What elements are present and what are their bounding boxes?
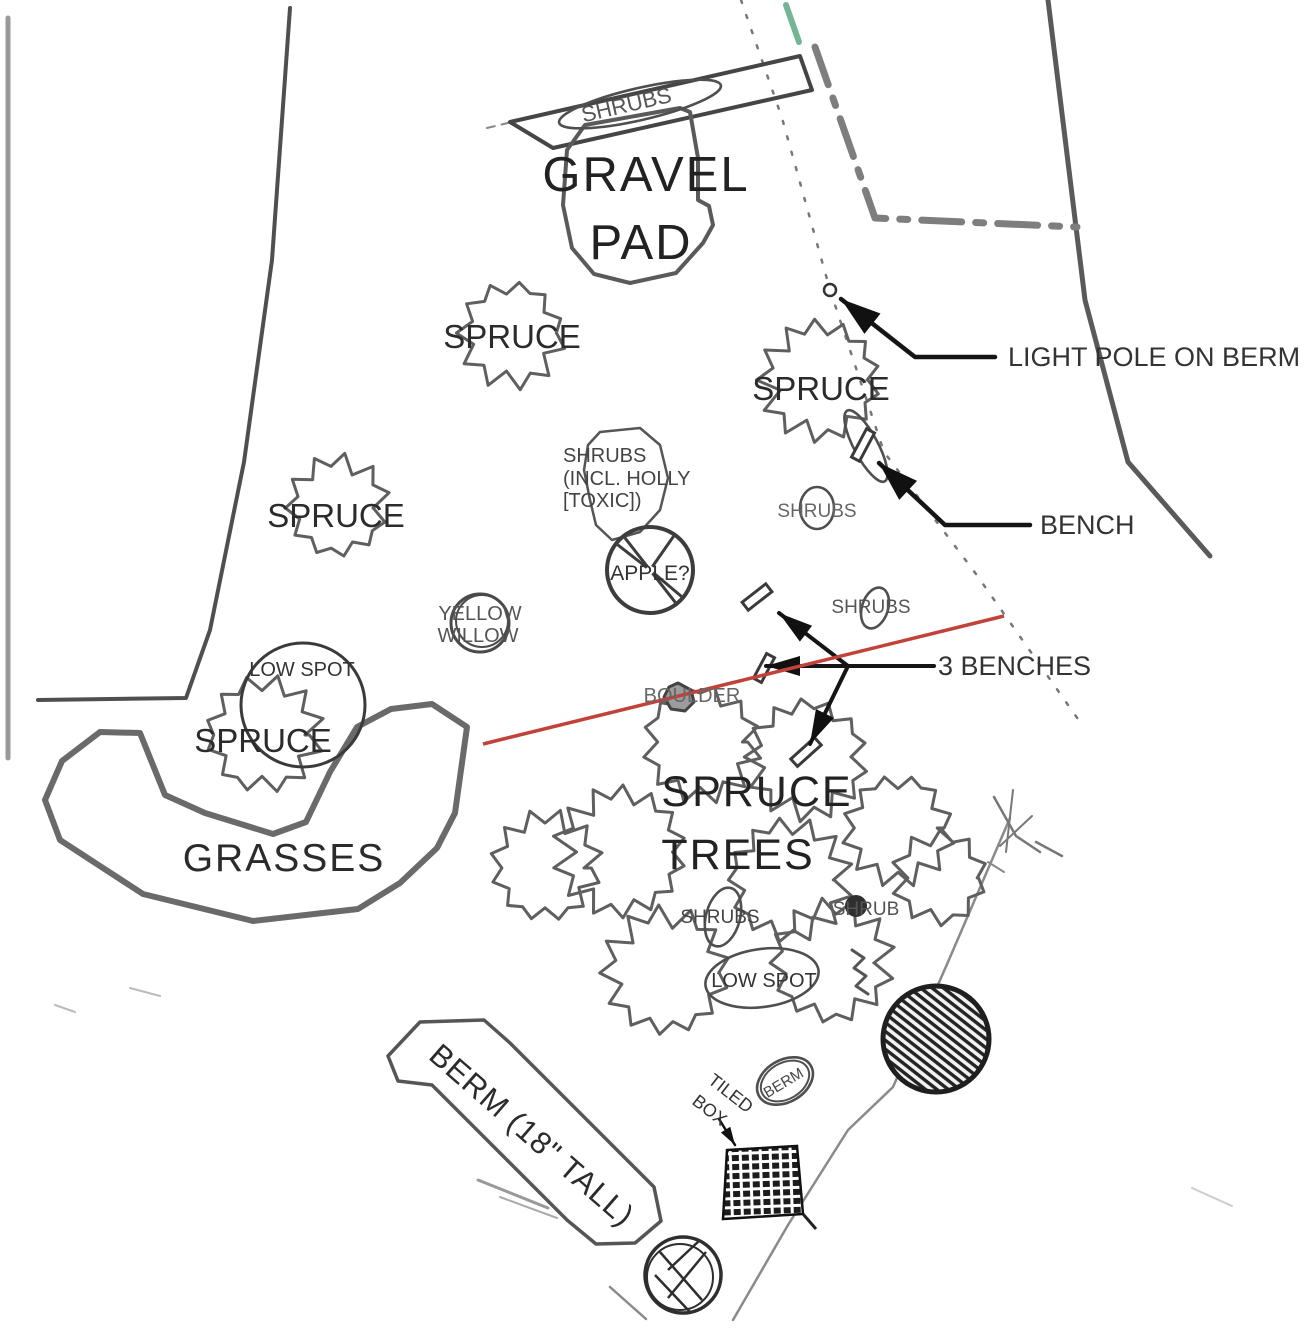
scribble-5 bbox=[988, 862, 1004, 872]
label-pad: PAD bbox=[589, 216, 692, 270]
label-shrubs-holly-2: (INCL. HOLLY bbox=[563, 468, 690, 490]
tiled-box-symbol bbox=[723, 1146, 816, 1229]
arrow-head bbox=[841, 299, 881, 334]
scribble-zigzag bbox=[852, 950, 868, 994]
label-light-pole: LIGHT POLE ON BERM bbox=[1008, 342, 1300, 372]
label-grasses: GRASSES bbox=[183, 837, 386, 880]
label-shrubs-mid: SHRUBS bbox=[831, 597, 910, 618]
label-low-spot-2: LOW SPOT bbox=[711, 970, 817, 992]
arrow-head bbox=[721, 1127, 735, 1145]
scribble-1 bbox=[994, 797, 1040, 852]
bench-arrow bbox=[879, 463, 1030, 525]
light-pole-symbol bbox=[824, 284, 836, 296]
bench-symbol bbox=[852, 429, 875, 461]
label-3-benches: 3 BENCHES bbox=[938, 651, 1091, 681]
label-yellow: YELLOW bbox=[438, 603, 521, 625]
label-low-spot-1: LOW SPOT bbox=[249, 659, 355, 681]
label-spruce-trees-2: TREES bbox=[661, 831, 814, 879]
label-shrubs-top: SHRUBS bbox=[579, 82, 674, 127]
west-boundary-line bbox=[38, 8, 290, 700]
berm-shadow-1 bbox=[478, 1180, 548, 1208]
dash-dot-line bbox=[815, 47, 1077, 227]
east-boundary-line bbox=[1048, 0, 1210, 556]
label-shrubs-holly-3: [TOXIC]) bbox=[563, 490, 642, 512]
bench-symbol bbox=[742, 584, 772, 610]
site-plan-page: SHRUBSGRAVELPADSPRUCESPRUCELIGHT POLE ON… bbox=[0, 0, 1316, 1329]
label-spruce-4: SPRUCE bbox=[194, 722, 332, 759]
scribble-4 bbox=[1036, 842, 1062, 856]
label-spruce-1: SPRUCE bbox=[443, 318, 581, 355]
short-stroke bbox=[610, 1287, 646, 1319]
label-spruce-3: SPRUCE bbox=[267, 497, 405, 534]
spruce-tree-symbol bbox=[893, 829, 985, 926]
label-shrub: SHRUB bbox=[833, 899, 900, 920]
label-spruce-trees-1: SPRUCE bbox=[661, 768, 852, 816]
label-boulder: BOULDER bbox=[644, 685, 741, 707]
bench-symbol bbox=[791, 738, 821, 767]
label-spruce-2: SPRUCE bbox=[752, 370, 890, 407]
spruce-tree-symbol bbox=[491, 810, 602, 919]
red-section-line bbox=[483, 616, 1004, 744]
site-plan-drawing: SHRUBSGRAVELPADSPRUCESPRUCELIGHT POLE ON… bbox=[0, 0, 1316, 1329]
existing-tree-symbol bbox=[883, 986, 989, 1092]
label-gravel: GRAVEL bbox=[542, 148, 749, 202]
sketch-tree-symbol bbox=[645, 1237, 721, 1313]
smudge-2 bbox=[130, 988, 160, 996]
label-willow: WILLOW bbox=[437, 625, 518, 647]
labels-layer: SHRUBSGRAVELPADSPRUCESPRUCELIGHT POLE ON… bbox=[183, 82, 1300, 1233]
smudge-3 bbox=[1192, 1188, 1232, 1206]
label-apple: APPLE? bbox=[610, 562, 689, 585]
green-mark bbox=[786, 5, 799, 42]
arrow-head bbox=[779, 613, 812, 642]
label-shrubs-right: SHRUBS bbox=[777, 501, 856, 522]
label-shrubs-cluster: SHRUBS bbox=[680, 907, 759, 928]
smudge-1 bbox=[55, 1005, 75, 1012]
label-bench: BENCH bbox=[1040, 510, 1135, 540]
label-shrubs-holly-1: SHRUBS bbox=[563, 445, 646, 467]
benches-arrow-3 bbox=[810, 666, 848, 744]
